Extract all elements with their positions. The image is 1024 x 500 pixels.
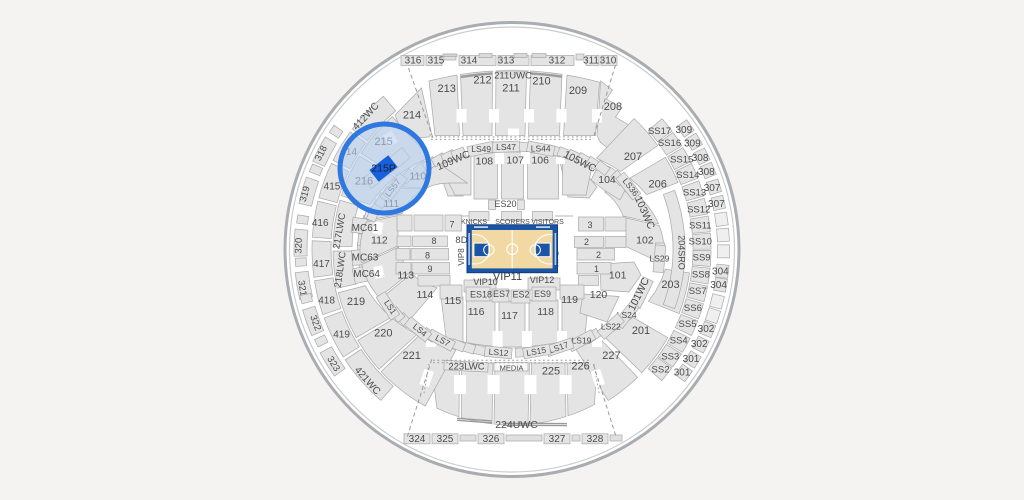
svg-text:308: 308 xyxy=(692,153,709,164)
svg-text:219: 219 xyxy=(347,296,365,308)
svg-text:ES9: ES9 xyxy=(534,289,551,299)
svg-text:324: 324 xyxy=(409,434,426,445)
svg-text:227: 227 xyxy=(602,350,620,362)
svg-text:209: 209 xyxy=(569,85,587,97)
svg-text:201: 201 xyxy=(632,325,650,337)
svg-text:419: 419 xyxy=(333,330,350,341)
svg-text:204SRO: 204SRO xyxy=(677,235,687,270)
svg-text:328: 328 xyxy=(587,434,604,445)
svg-text:SS11: SS11 xyxy=(689,220,712,231)
svg-text:417: 417 xyxy=(313,259,330,270)
svg-text:113: 113 xyxy=(397,270,414,282)
svg-text:SS7: SS7 xyxy=(689,286,707,297)
svg-text:SS4: SS4 xyxy=(670,336,688,347)
svg-text:214: 214 xyxy=(403,110,421,122)
svg-text:416: 416 xyxy=(312,218,329,229)
svg-text:MC61: MC61 xyxy=(352,223,379,234)
svg-text:418: 418 xyxy=(318,296,335,307)
svg-text:107: 107 xyxy=(506,154,524,166)
svg-text:101: 101 xyxy=(609,270,627,282)
svg-text:106: 106 xyxy=(531,155,549,167)
svg-text:308: 308 xyxy=(698,167,715,178)
svg-text:2: 2 xyxy=(584,237,589,247)
svg-text:215P: 215P xyxy=(371,162,396,174)
svg-text:226: 226 xyxy=(571,361,589,373)
svg-text:3: 3 xyxy=(587,220,592,230)
svg-text:314: 314 xyxy=(461,56,478,67)
svg-text:1: 1 xyxy=(594,264,599,274)
svg-text:302: 302 xyxy=(691,339,708,350)
svg-text:LS12: LS12 xyxy=(488,346,509,358)
svg-text:9: 9 xyxy=(427,264,432,274)
svg-text:SS6: SS6 xyxy=(684,303,702,314)
svg-text:310: 310 xyxy=(600,56,617,67)
svg-text:SS12: SS12 xyxy=(687,204,710,215)
svg-text:208: 208 xyxy=(604,101,622,113)
svg-text:313: 313 xyxy=(498,56,515,67)
svg-text:224UWC: 224UWC xyxy=(495,419,538,431)
svg-text:108: 108 xyxy=(476,155,494,167)
svg-text:ES20: ES20 xyxy=(494,199,516,209)
svg-text:220: 220 xyxy=(374,328,392,340)
svg-text:206: 206 xyxy=(649,179,667,191)
svg-text:102: 102 xyxy=(636,234,654,246)
svg-text:SS2: SS2 xyxy=(652,364,670,375)
svg-text:116: 116 xyxy=(468,306,485,318)
svg-text:LS29: LS29 xyxy=(649,254,669,264)
svg-text:309: 309 xyxy=(675,125,692,136)
svg-text:VIP12: VIP12 xyxy=(530,275,555,285)
svg-text:309: 309 xyxy=(684,138,701,149)
svg-text:MC63: MC63 xyxy=(352,252,379,263)
svg-text:301: 301 xyxy=(683,354,700,365)
svg-text:118: 118 xyxy=(537,306,554,318)
svg-text:316: 316 xyxy=(405,56,422,67)
svg-text:207: 207 xyxy=(624,151,642,163)
svg-text:415: 415 xyxy=(324,182,341,193)
svg-text:225: 225 xyxy=(542,365,560,377)
svg-text:325: 325 xyxy=(437,434,454,445)
svg-text:117: 117 xyxy=(501,310,518,322)
svg-text:311: 311 xyxy=(583,56,599,67)
svg-text:SS9: SS9 xyxy=(693,252,711,263)
svg-text:307: 307 xyxy=(708,199,725,210)
svg-text:2: 2 xyxy=(596,250,601,260)
svg-text:SS8: SS8 xyxy=(692,269,710,280)
svg-text:LS19: LS19 xyxy=(572,336,592,346)
svg-text:SS14: SS14 xyxy=(676,170,699,181)
svg-text:ES18: ES18 xyxy=(470,290,492,300)
svg-text:326: 326 xyxy=(483,434,500,445)
svg-text:212: 212 xyxy=(473,75,491,87)
svg-text:8D: 8D xyxy=(455,235,467,246)
svg-text:8: 8 xyxy=(425,251,430,261)
svg-text:SS16: SS16 xyxy=(658,138,681,149)
svg-text:ES7: ES7 xyxy=(493,289,510,299)
svg-text:312: 312 xyxy=(549,56,566,67)
svg-text:203: 203 xyxy=(661,279,679,291)
svg-text:SS3: SS3 xyxy=(661,352,679,363)
svg-text:211: 211 xyxy=(502,83,520,95)
svg-text:LS49: LS49 xyxy=(471,144,491,154)
svg-text:115: 115 xyxy=(444,295,461,307)
svg-text:SS5: SS5 xyxy=(679,319,697,330)
svg-text:315: 315 xyxy=(428,56,445,67)
svg-text:302: 302 xyxy=(698,324,715,335)
svg-text:LS47: LS47 xyxy=(496,142,516,152)
svg-text:SS13: SS13 xyxy=(683,187,706,198)
svg-text:104: 104 xyxy=(598,174,616,186)
svg-text:307: 307 xyxy=(704,183,721,194)
svg-text:221: 221 xyxy=(403,350,421,362)
svg-text:MEDIA: MEDIA xyxy=(500,363,524,372)
svg-text:223LWC: 223LWC xyxy=(448,362,484,373)
svg-text:VIP8: VIP8 xyxy=(457,248,466,266)
svg-text:8: 8 xyxy=(431,236,436,246)
svg-text:120: 120 xyxy=(590,289,608,301)
svg-text:304: 304 xyxy=(710,280,727,291)
svg-text:LS44: LS44 xyxy=(531,144,551,154)
svg-text:304: 304 xyxy=(712,267,729,278)
svg-text:MC64: MC64 xyxy=(353,269,380,280)
svg-text:SS15: SS15 xyxy=(670,155,693,166)
svg-text:213: 213 xyxy=(438,83,456,95)
svg-text:SS17: SS17 xyxy=(648,126,671,137)
svg-text:112: 112 xyxy=(371,235,388,247)
svg-text:LS22: LS22 xyxy=(601,321,621,331)
svg-text:327: 327 xyxy=(549,434,566,445)
svg-text:211UWC: 211UWC xyxy=(494,71,532,82)
svg-text:114: 114 xyxy=(417,289,434,301)
svg-text:7: 7 xyxy=(449,220,454,230)
svg-text:320: 320 xyxy=(293,238,304,254)
svg-text:119: 119 xyxy=(561,294,578,306)
svg-text:ES2: ES2 xyxy=(512,290,529,300)
svg-text:SS10: SS10 xyxy=(689,236,712,247)
svg-text:210: 210 xyxy=(532,75,550,87)
svg-text:301: 301 xyxy=(674,367,691,378)
